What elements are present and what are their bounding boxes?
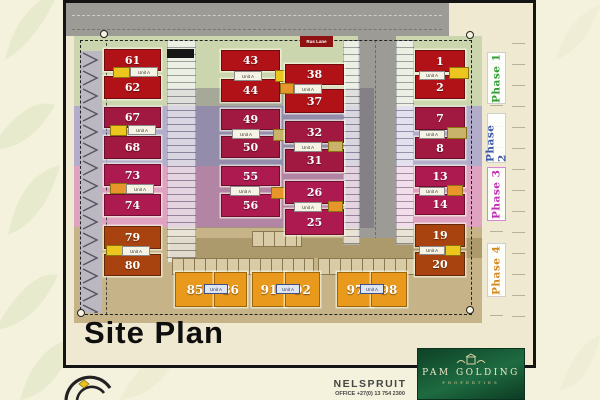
- margin-ticks: [512, 23, 525, 323]
- garage-block: [110, 183, 127, 194]
- street-name-label: Rus Lane: [300, 36, 333, 47]
- unit-type-label: Unit A: [126, 184, 154, 194]
- garage-block: [106, 245, 123, 256]
- phase-4-label: Phase 4: [487, 243, 506, 297]
- garage-block: [449, 67, 469, 79]
- survey-marker: [466, 306, 474, 314]
- stand-74: 74: [104, 194, 161, 216]
- page-title: Site Plan: [84, 315, 224, 351]
- site-plan-page: Rus Lane 61 62 67 68 73 74 79 80 Unit A …: [0, 0, 600, 400]
- office-location: NELSPRUIT: [326, 378, 414, 390]
- unit-type-label: Unit A: [294, 84, 322, 94]
- garage-block: [328, 141, 343, 152]
- unit-type-label: Unit A: [294, 202, 322, 212]
- garage-block: [447, 127, 467, 139]
- garage-block: [447, 185, 463, 196]
- office-block: NELSPRUIT OFFICE +27(0) 13 754 2300: [326, 378, 414, 397]
- unit-type-label: Unit A: [419, 130, 445, 139]
- stand-13: 13: [415, 166, 465, 187]
- stand-14: 14: [415, 194, 465, 215]
- garage-block: [328, 201, 343, 212]
- stand-31: 31: [285, 149, 344, 172]
- garage-block: [113, 67, 130, 78]
- unit-type-label: Unit A: [276, 284, 300, 294]
- unit-type-label: Unit A: [419, 187, 445, 196]
- top-road: [66, 3, 449, 36]
- stand-8: 8: [415, 137, 465, 159]
- garage-block: [445, 245, 461, 256]
- brand-subtitle: PROPERTIES: [442, 380, 499, 385]
- stand-68: 68: [104, 136, 161, 159]
- office-phone: OFFICE +27(0) 13 754 2300: [326, 391, 414, 397]
- stand-80: 80: [104, 254, 161, 276]
- stand-25: 25: [285, 209, 344, 235]
- phase-2-label: Phase 2: [487, 113, 506, 163]
- unit-type-label: Unit A: [130, 67, 158, 77]
- unit-type-label: Unit A: [204, 284, 228, 294]
- stand-55: 55: [221, 166, 280, 186]
- unit-type-label: Unit A: [122, 246, 150, 256]
- unit-type-label: Unit A: [419, 246, 445, 255]
- stand-32: 32: [285, 121, 344, 143]
- survey-marker: [100, 30, 108, 38]
- site-plan-frame: Rus Lane 61 62 67 68 73 74 79 80 Unit A …: [63, 0, 536, 368]
- phase-3-label: Phase 3: [487, 167, 506, 221]
- stand-19: 19: [415, 224, 465, 247]
- unit-type-label: Unit A: [360, 284, 384, 294]
- developer-logo-icon: [62, 372, 118, 400]
- phase-1-label: Phase 1: [487, 52, 506, 104]
- garage-block: [110, 125, 127, 136]
- brand-name: PAM GOLDING: [422, 368, 520, 378]
- garage-block: [280, 83, 294, 94]
- stand-50: 50: [221, 136, 280, 158]
- unit-type-label: Unit A: [230, 186, 260, 196]
- survey-marker: [466, 31, 474, 39]
- unit-type-label: Unit A: [232, 129, 260, 139]
- brand-box: PAM GOLDING PROPERTIES: [417, 348, 525, 400]
- unit-type-label: Unit A: [294, 142, 322, 152]
- stand-62: 62: [104, 76, 161, 99]
- unit-type-label: Unit A: [128, 125, 156, 135]
- unit-type-label: Unit A: [234, 71, 262, 81]
- stand-38: 38: [285, 64, 344, 85]
- brand-crest-icon: [456, 353, 486, 367]
- stand-43: 43: [221, 50, 280, 71]
- stand-44: 44: [221, 79, 280, 102]
- unit-type-label: Unit A: [419, 71, 445, 80]
- stand-49: 49: [221, 109, 280, 130]
